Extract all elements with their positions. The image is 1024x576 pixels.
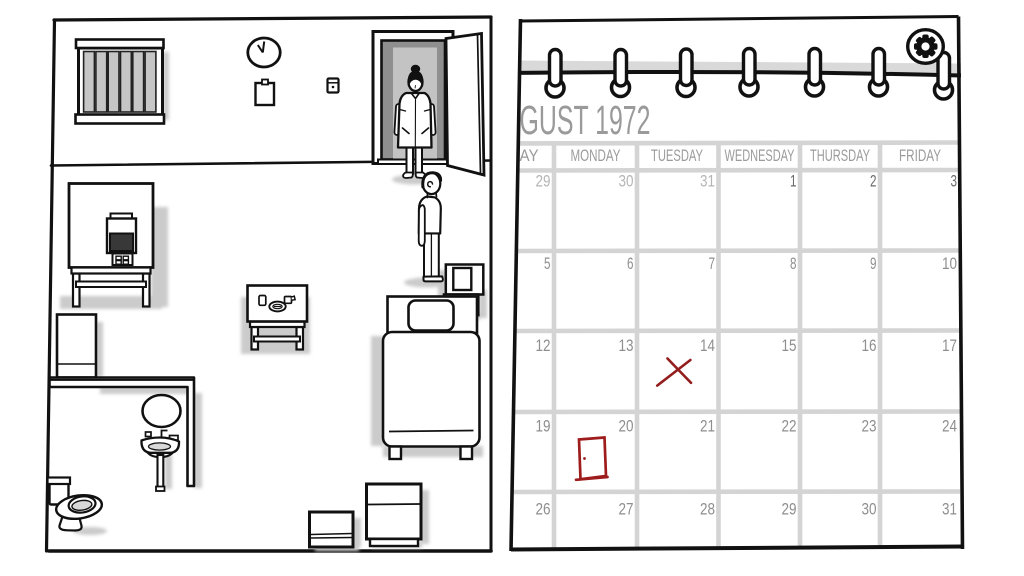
svg-text:FRIDAY: FRIDAY — [899, 146, 941, 165]
svg-text:1: 1 — [790, 172, 797, 191]
svg-text:2: 2 — [870, 172, 877, 191]
svg-text:10: 10 — [942, 254, 957, 273]
svg-text:TUESDAY: TUESDAY — [651, 146, 703, 165]
svg-text:29: 29 — [536, 172, 551, 191]
svg-text:19: 19 — [536, 417, 551, 436]
svg-text:28: 28 — [700, 500, 715, 519]
svg-text:27: 27 — [619, 500, 634, 519]
svg-text:30: 30 — [619, 172, 634, 191]
svg-text:8: 8 — [790, 254, 797, 273]
svg-text:24: 24 — [942, 417, 957, 436]
svg-text:26: 26 — [536, 500, 551, 519]
svg-text:5: 5 — [544, 254, 551, 273]
svg-text:16: 16 — [862, 336, 877, 355]
svg-text:21: 21 — [700, 417, 715, 436]
svg-text:31: 31 — [942, 500, 957, 519]
svg-text:9: 9 — [870, 254, 877, 273]
svg-text:GUST 1972: GUST 1972 — [520, 97, 651, 143]
svg-text:20: 20 — [619, 417, 634, 436]
svg-text:29: 29 — [782, 500, 797, 519]
svg-text:31: 31 — [700, 172, 715, 191]
svg-text:THURSDAY: THURSDAY — [810, 146, 870, 165]
svg-text:AY: AY — [520, 146, 539, 165]
svg-text:22: 22 — [782, 417, 797, 436]
svg-text:17: 17 — [942, 336, 957, 355]
svg-text:3: 3 — [951, 172, 958, 191]
svg-text:WEDNESDAY: WEDNESDAY — [725, 146, 795, 165]
svg-text:12: 12 — [536, 336, 551, 355]
svg-text:6: 6 — [627, 254, 634, 273]
svg-text:15: 15 — [782, 336, 797, 355]
svg-text:14: 14 — [700, 336, 715, 355]
svg-text:7: 7 — [709, 254, 716, 273]
svg-text:MONDAY: MONDAY — [571, 146, 621, 165]
svg-text:13: 13 — [619, 336, 634, 355]
svg-text:23: 23 — [862, 417, 877, 436]
svg-text:30: 30 — [862, 500, 877, 519]
